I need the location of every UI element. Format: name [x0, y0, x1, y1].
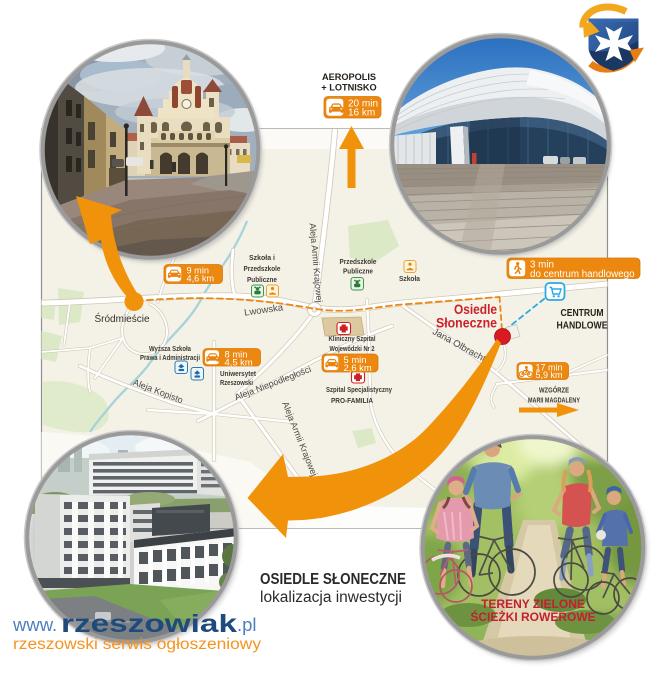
- svg-text:Wojewódzki Nr 2: Wojewódzki Nr 2: [330, 344, 375, 353]
- svg-text:Rzeszowski: Rzeszowski: [220, 378, 253, 387]
- svg-text:+ LOTNISKO: + LOTNISKO: [321, 83, 376, 93]
- svg-text:MARII MAGDALENY: MARII MAGDALENY: [528, 396, 580, 405]
- svg-text:Przedszkole: Przedszkole: [340, 257, 377, 266]
- svg-text:Słoneczne: Słoneczne: [436, 316, 497, 331]
- svg-text:Kliniczny Szpital: Kliniczny Szpital: [329, 334, 376, 343]
- svg-text:Publiczne: Publiczne: [247, 275, 277, 284]
- svg-text:ŚCIEŻKI ROWEROWE: ŚCIEŻKI ROWEROWE: [470, 609, 595, 624]
- svg-text:Szkoła: Szkoła: [399, 274, 421, 283]
- svg-text:16 km: 16 km: [348, 107, 375, 118]
- svg-text:OSIEDLE SŁONECZNE: OSIEDLE SŁONECZNE: [260, 571, 406, 588]
- svg-text:5,9 km: 5,9 km: [536, 370, 563, 380]
- svg-text:HANDLOWE: HANDLOWE: [557, 321, 608, 332]
- svg-text:Szpital Specjalistyczny: Szpital Specjalistyczny: [326, 385, 393, 394]
- svg-text:Przedszkole: Przedszkole: [244, 264, 281, 273]
- svg-text:2,6 km: 2,6 km: [344, 362, 372, 373]
- svg-text:Szkoła i: Szkoła i: [249, 253, 275, 262]
- svg-text:Publiczne: Publiczne: [343, 267, 373, 276]
- svg-text:Śródmieście: Śródmieście: [94, 312, 149, 325]
- svg-text:PRO-FAMILIA: PRO-FAMILIA: [331, 396, 374, 405]
- svg-text:4,5 km: 4,5 km: [225, 356, 253, 367]
- svg-text:AEROPOLIS: AEROPOLIS: [322, 72, 376, 82]
- svg-text:lokalizacja inwestycji: lokalizacja inwestycji: [260, 589, 402, 606]
- svg-text:Prawa i Administracji: Prawa i Administracji: [140, 353, 200, 362]
- svg-text:Uniwersytet: Uniwersytet: [220, 369, 256, 378]
- svg-text:Wyższa Szkoła: Wyższa Szkoła: [149, 344, 192, 353]
- svg-text:rzeszowiak: rzeszowiak: [61, 610, 237, 638]
- svg-text:TERENY ZIELONE: TERENY ZIELONE: [481, 597, 585, 611]
- svg-text:www.: www.: [12, 614, 57, 635]
- svg-text:WZGÓRZE: WZGÓRZE: [539, 386, 569, 395]
- svg-text:.pl: .pl: [237, 614, 257, 635]
- svg-text:4,6 km: 4,6 km: [187, 274, 215, 284]
- svg-text:CENTRUM: CENTRUM: [561, 308, 604, 319]
- svg-text:do centrum handlowego: do centrum handlowego: [530, 269, 635, 280]
- svg-text:rzeszowski serwis ogłoszeniowy: rzeszowski serwis ogłoszeniowy: [13, 636, 261, 653]
